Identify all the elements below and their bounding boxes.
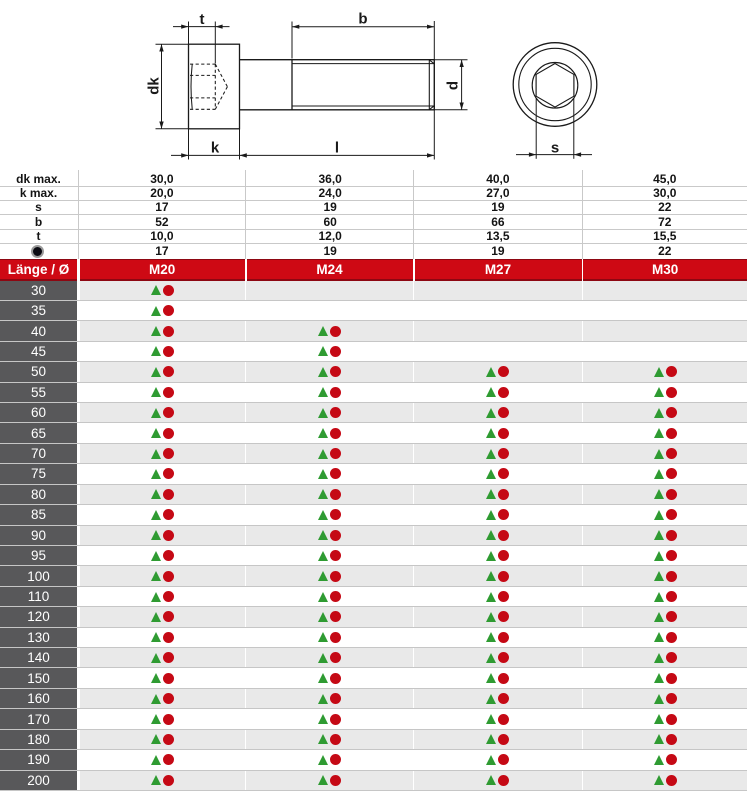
svg-text:d: d [445, 81, 462, 90]
svg-text:k: k [211, 140, 220, 157]
svg-text:t: t [200, 11, 205, 28]
svg-text:l: l [335, 140, 339, 157]
svg-text:dk: dk [146, 77, 163, 95]
svg-text:s: s [551, 139, 559, 156]
svg-text:b: b [358, 11, 367, 28]
